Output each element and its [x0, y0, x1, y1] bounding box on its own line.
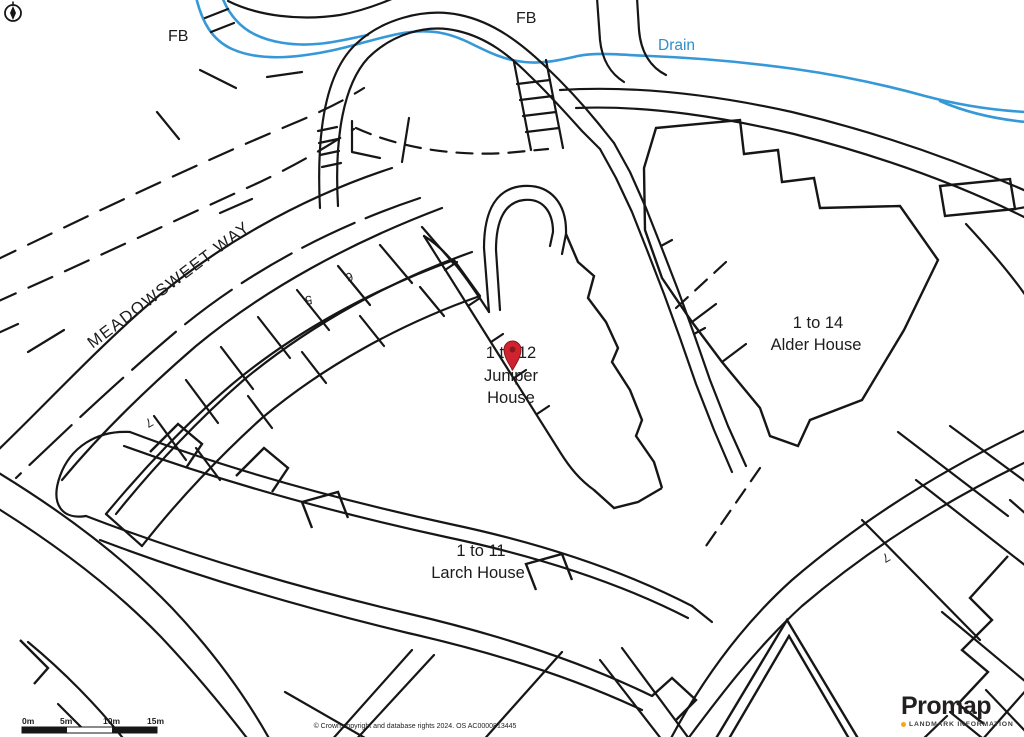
scale-bar: 0m 5m 10m 15m — [22, 716, 164, 733]
svg-text:Alder House: Alder House — [771, 336, 862, 354]
landmark-dot-icon — [901, 722, 906, 727]
label-alder-house: 1 to 14 Alder House — [771, 314, 862, 354]
svg-text:Larch House: Larch House — [431, 564, 525, 582]
north-arrow-icon — [5, 2, 21, 22]
svg-text:Juniper: Juniper — [484, 367, 539, 385]
promap-logo: Promap LANDMARK INFORMATION — [901, 694, 1014, 728]
label-plot-7-right: 7 — [879, 550, 892, 566]
scale-label-15: 15m — [147, 716, 164, 726]
terrace-row — [106, 260, 480, 546]
footbridge-ticks — [205, 9, 563, 150]
promap-wordmark: Promap — [901, 694, 1014, 719]
svg-text:House: House — [487, 389, 535, 407]
bottom-left-paths — [0, 470, 270, 737]
juniper-side-path — [600, 143, 746, 472]
scale-label-0: 0m — [22, 716, 35, 726]
svg-text:1 to 14: 1 to 14 — [793, 314, 843, 332]
svg-text:1 to 11: 1 to 11 — [456, 542, 505, 560]
label-larch-house: 1 to 11 Larch House — [431, 542, 525, 582]
copyright-attribution: © Crown copyright and database rights 20… — [314, 722, 517, 730]
map-viewport[interactable]: FB FB Drain MEADOWSWEET WAY 5 6 7 7 1 to… — [0, 0, 1024, 737]
east-path-band — [560, 89, 1024, 218]
scale-label-5: 5m — [60, 716, 73, 726]
bottom-right-development — [670, 426, 1024, 737]
drain-watercourse — [196, 0, 1024, 122]
label-drain: Drain — [658, 37, 695, 54]
landmark-tagline: LANDMARK INFORMATION — [909, 721, 1014, 728]
map-canvas: FB FB Drain MEADOWSWEET WAY 5 6 7 7 1 to… — [0, 0, 1024, 737]
juniper-house-building — [424, 186, 662, 508]
alder-house-building — [644, 120, 938, 446]
label-plot-5: 5 — [304, 292, 313, 307]
label-plot-6: 6 — [344, 269, 355, 285]
plot-strip — [62, 208, 472, 514]
label-fb-center: FB — [516, 10, 536, 27]
label-meadowsweet-way: MEADOWSWEET WAY — [84, 218, 254, 352]
meadowsweet-way-road — [0, 168, 420, 478]
scale-label-10: 10m — [103, 716, 120, 726]
label-fb-left: FB — [168, 28, 188, 45]
